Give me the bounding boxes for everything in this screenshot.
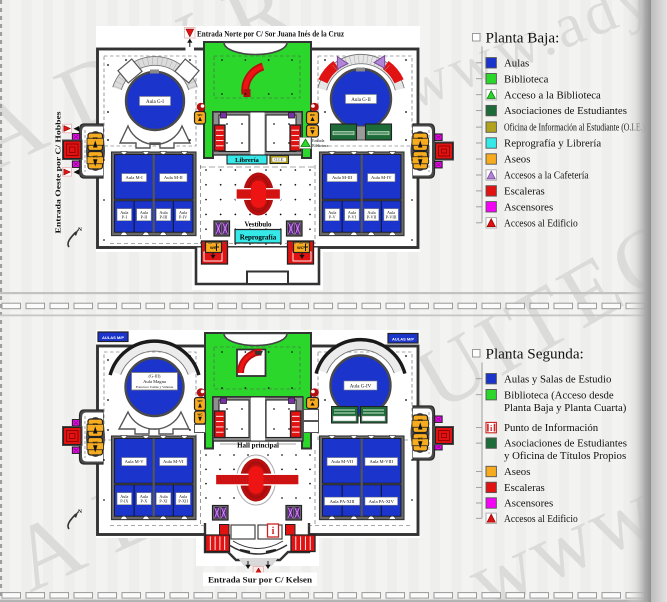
- svg-text:Biblioteca: Biblioteca: [504, 73, 549, 85]
- svg-text:Biblioteca: Biblioteca: [312, 143, 329, 148]
- svg-text:(G-III): (G-III): [149, 374, 161, 379]
- svg-text:Biblioteca (Acceso desde: Biblioteca (Acceso desde: [504, 389, 614, 401]
- svg-text:Aula M-II: Aula M-II: [164, 175, 183, 180]
- svg-text:Reprografía y Librería: Reprografía y Librería: [504, 138, 601, 150]
- svg-text:WC: WC: [310, 113, 316, 117]
- svg-text:WC: WC: [418, 436, 424, 440]
- svg-text:P-XI: P-XI: [159, 499, 168, 504]
- svg-text:Entrada Norte por C/ Sor Juana: Entrada Norte por C/ Sor Juana Inés de l…: [197, 30, 344, 39]
- svg-text:Aula M-IV: Aula M-IV: [371, 175, 392, 180]
- svg-text:Planta Baja:: Planta Baja:: [486, 30, 560, 47]
- svg-text:Acceso a la Biblioteca: Acceso a la Biblioteca: [504, 89, 601, 101]
- svg-text:Aula M-V: Aula M-V: [125, 459, 145, 464]
- svg-text:WC: WC: [310, 398, 316, 402]
- svg-text:O.I.E.: O.I.E.: [274, 157, 284, 162]
- svg-text:WC: WC: [198, 399, 204, 403]
- svg-text:Aula M-VI: Aula M-VI: [163, 459, 184, 464]
- svg-text:Aula M-VIII: Aula M-VIII: [369, 459, 393, 464]
- svg-text:Aseos: Aseos: [504, 466, 530, 478]
- svg-text:WC: WC: [93, 440, 99, 444]
- svg-text:Entrada Sur por C/ Kelsen: Entrada Sur por C/ Kelsen: [208, 575, 312, 585]
- svg-text:Oficina de Información al Estu: Oficina de Información al Estudiante (O.…: [504, 122, 645, 135]
- svg-text:WC: WC: [198, 412, 204, 416]
- svg-text:Aula M-III: Aula M-III: [332, 175, 353, 180]
- svg-text:Vestíbulo: Vestíbulo: [245, 222, 273, 229]
- svg-text:WC: WC: [93, 154, 99, 158]
- svg-text:AULAS M/P: AULAS M/P: [392, 336, 414, 341]
- svg-text:P-IX: P-IX: [120, 499, 128, 504]
- svg-text:Planta Baja y Planta Cuarta): Planta Baja y Planta Cuarta): [504, 402, 627, 414]
- svg-text:Aula G-II: Aula G-II: [351, 98, 371, 103]
- svg-text:P-II: P-II: [141, 215, 148, 220]
- svg-text:WC: WC: [418, 154, 424, 158]
- svg-text:Accesos al Edificio: Accesos al Edificio: [504, 218, 578, 230]
- svg-text:Accesos al Edificio: Accesos al Edificio: [504, 513, 578, 525]
- svg-text:Aula G-IV: Aula G-IV: [350, 384, 372, 389]
- svg-text:P-IV: P-IV: [179, 215, 187, 220]
- svg-text:P-X: P-X: [141, 499, 148, 504]
- svg-text:Reprografía: Reprografía: [240, 233, 277, 241]
- svg-text:Punto de Información: Punto de Información: [504, 422, 599, 434]
- svg-text:P-I: P-I: [122, 215, 128, 220]
- svg-text:Aulas y Salas de Estudio: Aulas y Salas de Estudio: [504, 373, 611, 385]
- svg-text:Aseos: Aseos: [504, 154, 530, 166]
- svg-text:Entrada Oeste por C/ Hobbes: Entrada Oeste por C/ Hobbes: [54, 111, 63, 233]
- svg-text:P-XII: P-XII: [178, 499, 188, 504]
- svg-text:Aula Magna: Aula Magna: [143, 379, 166, 384]
- svg-text:Aula PA-XIV: Aula PA-XIV: [369, 499, 395, 504]
- svg-text:WC: WC: [297, 245, 304, 250]
- svg-text:P-VI: P-VI: [348, 215, 357, 220]
- svg-text:Aula M-I: Aula M-I: [125, 175, 143, 180]
- svg-text:Planta Segunda:: Planta Segunda:: [486, 346, 584, 363]
- svg-text:Librería: Librería: [235, 157, 259, 164]
- svg-text:Escaleras: Escaleras: [504, 186, 545, 198]
- svg-text:Hall principal: Hall principal: [237, 441, 279, 449]
- svg-text:WC: WC: [310, 126, 316, 130]
- svg-text:WC: WC: [93, 422, 99, 426]
- svg-text:WC: WC: [198, 113, 204, 117]
- svg-text:Ascensores: Ascensores: [504, 201, 553, 213]
- svg-text:y Oficina de Títulos Propios: y Oficina de Títulos Propios: [504, 450, 626, 462]
- svg-text:P-V: P-V: [329, 215, 336, 220]
- svg-text:i: i: [272, 526, 275, 537]
- svg-text:Asociaciones de Estudiantes: Asociaciones de Estudiantes: [504, 438, 627, 450]
- svg-text:WC: WC: [418, 136, 424, 140]
- svg-text:P-VII: P-VII: [367, 215, 377, 220]
- svg-text:Accesos a la Cafetería: Accesos a la Cafetería: [504, 170, 589, 182]
- svg-text:N: N: [78, 227, 82, 233]
- svg-text:P-VIII: P-VIII: [386, 215, 398, 220]
- svg-text:Aulas: Aulas: [504, 57, 529, 69]
- svg-text:Aula G-I: Aula G-I: [146, 100, 164, 105]
- svg-text:WC: WC: [93, 136, 99, 140]
- svg-text:WC: WC: [418, 418, 424, 422]
- svg-text:N: N: [78, 509, 82, 515]
- svg-text:Ascensores: Ascensores: [504, 498, 553, 510]
- svg-text:Aula PA-XIII: Aula PA-XIII: [330, 499, 355, 504]
- svg-text:Asociaciones de Estudiantes: Asociaciones de Estudiantes: [504, 105, 627, 117]
- svg-text:Escaleras: Escaleras: [504, 482, 545, 494]
- svg-text:Francisco Tomás y Valiente: Francisco Tomás y Valiente: [136, 385, 174, 389]
- svg-text:P-III: P-III: [160, 215, 169, 220]
- svg-text:AULAS M/P: AULAS M/P: [102, 335, 124, 340]
- svg-text:Aula M-VII: Aula M-VII: [331, 459, 354, 464]
